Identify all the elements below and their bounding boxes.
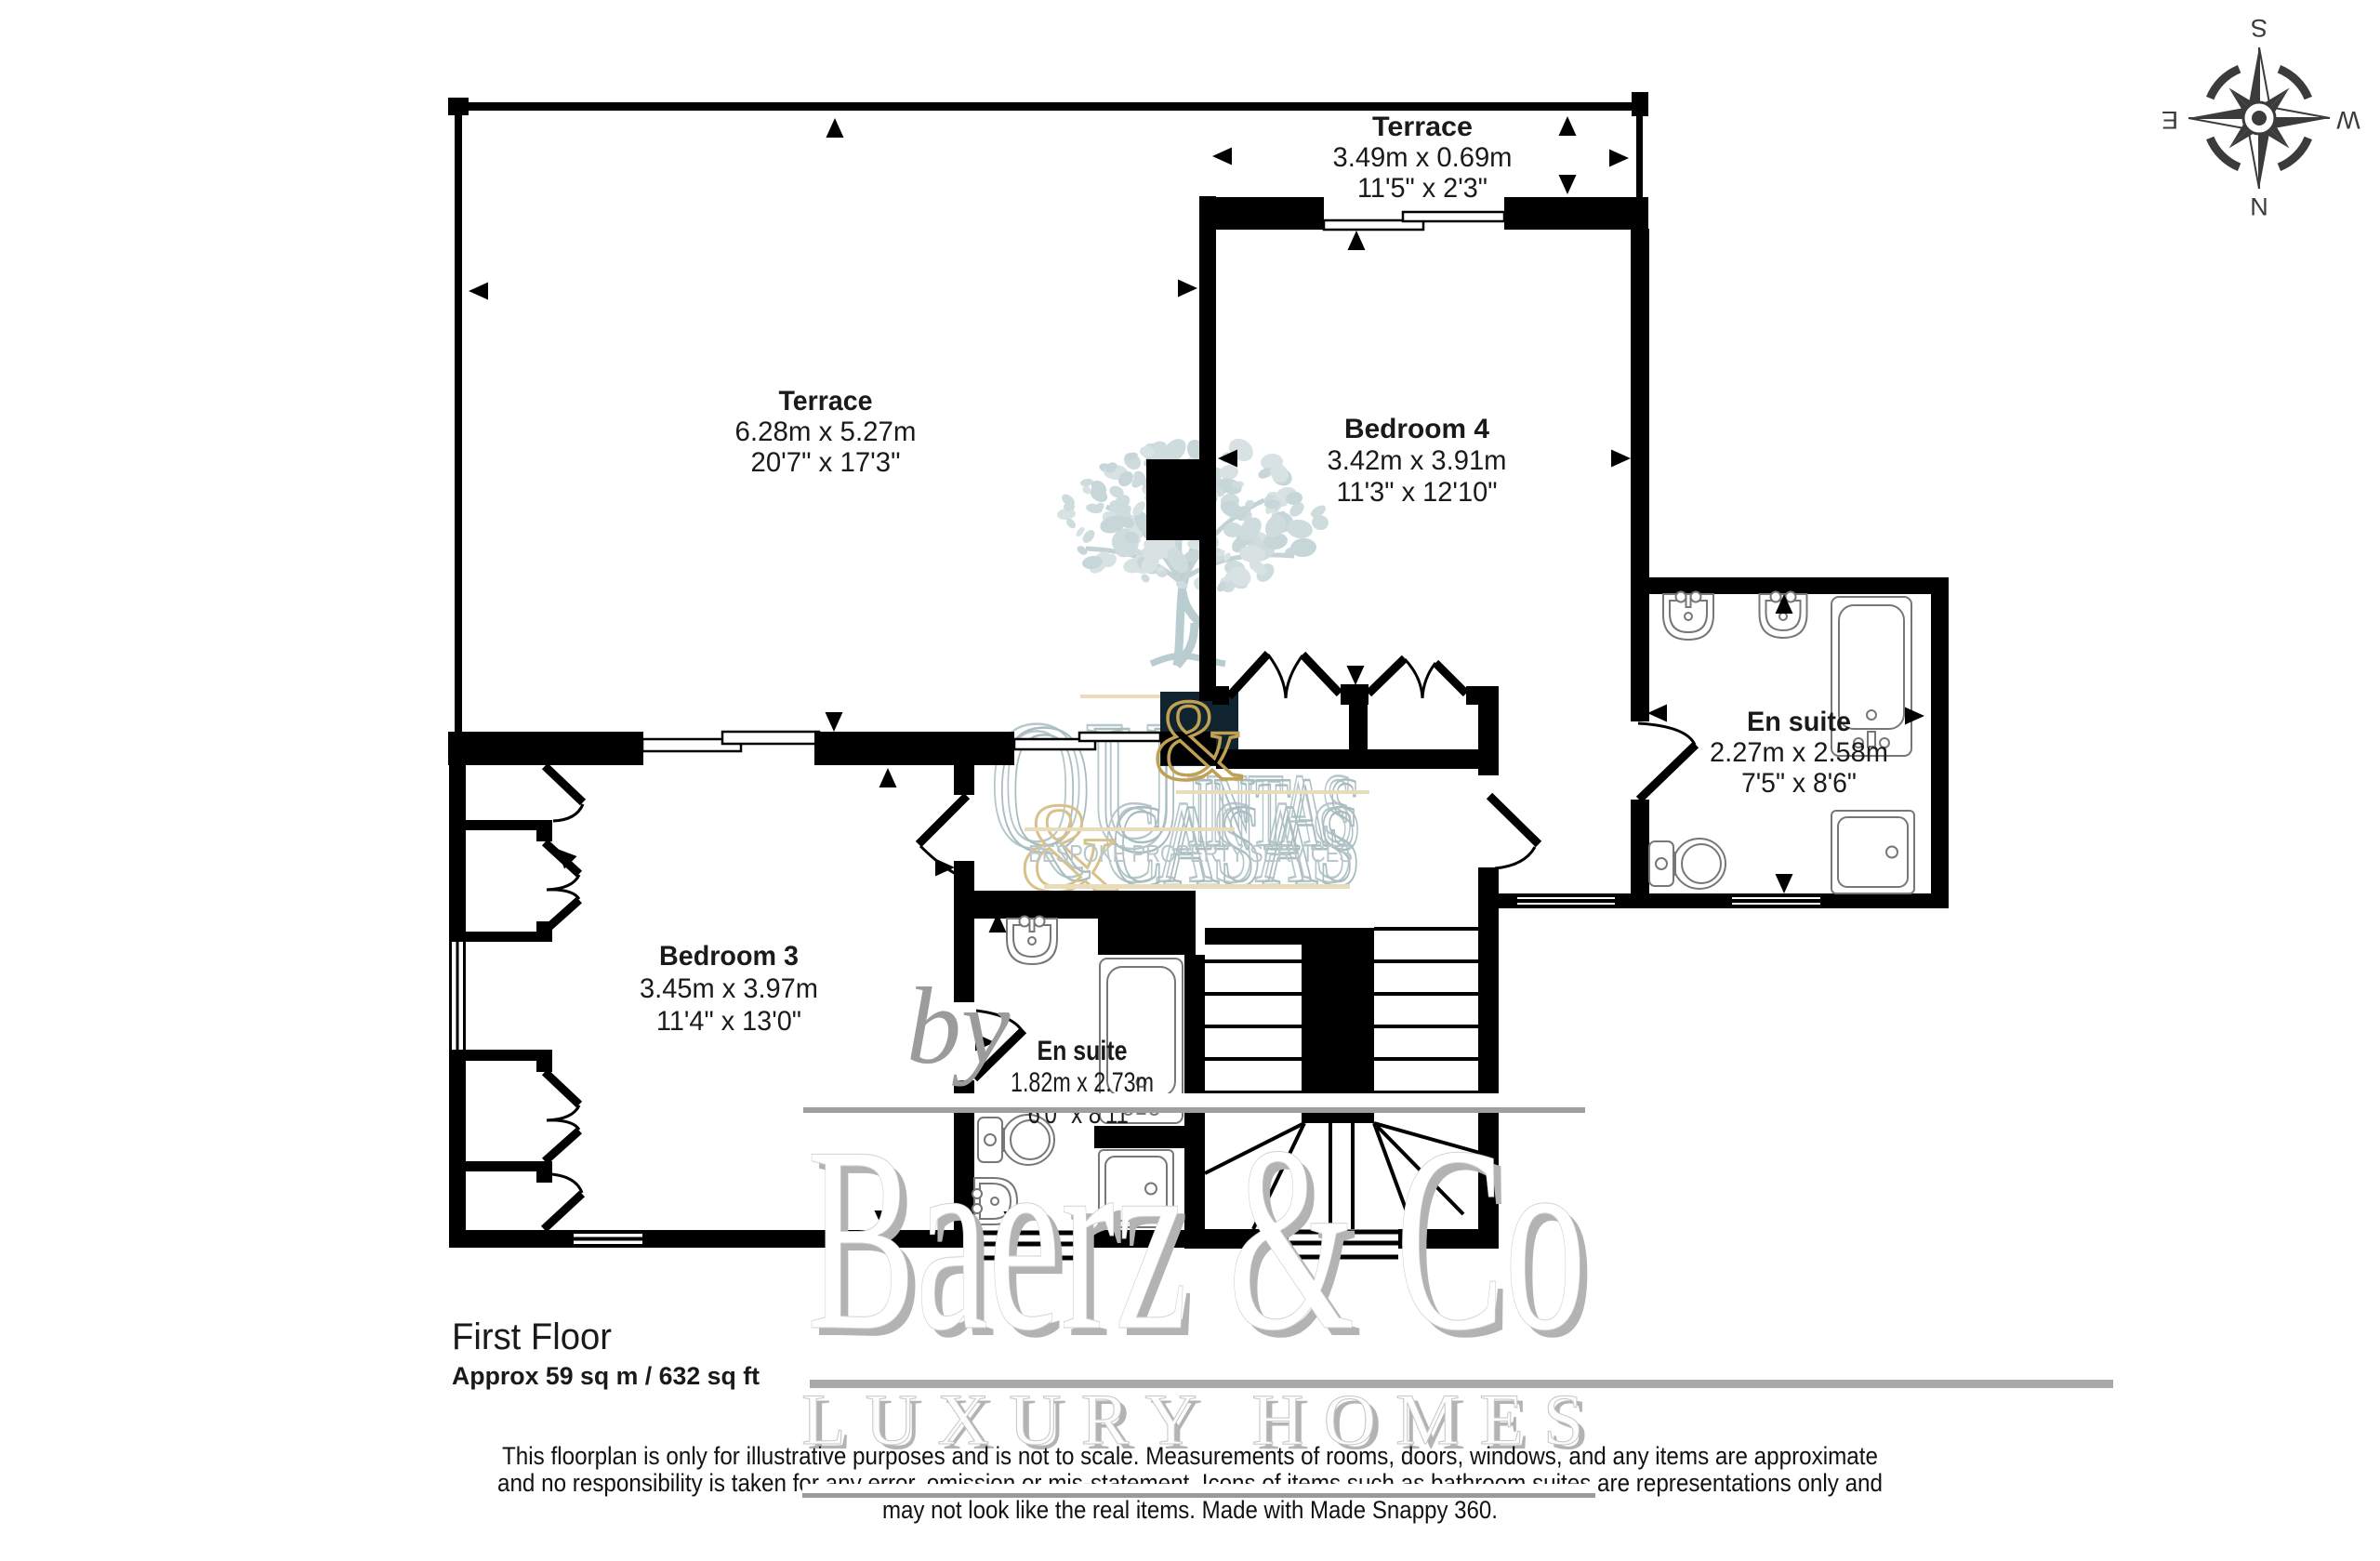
svg-text:6.28m x 5.27m: 6.28m x 5.27m <box>735 417 917 447</box>
svg-text:W: W <box>2336 106 2360 134</box>
svg-text:11'3" x 12'10": 11'3" x 12'10" <box>1337 477 1498 508</box>
svg-text:En suite: En suite <box>1747 707 1851 737</box>
svg-text:BESPOKE PROPERTY SERVICES: BESPOKE PROPERTY SERVICES <box>1028 840 1353 867</box>
svg-text:20'7" x 17'3": 20'7" x 17'3" <box>751 447 901 478</box>
svg-text:3.45m x 3.97m: 3.45m x 3.97m <box>640 973 818 1004</box>
svg-text:&: & <box>1153 677 1243 805</box>
svg-text:11'4" x 13'0": 11'4" x 13'0" <box>656 1006 801 1037</box>
svg-text:Bedroom 3: Bedroom 3 <box>659 941 799 972</box>
svg-text:En suite: En suite <box>1038 1036 1128 1066</box>
svg-text:Approx 59 sq m / 632 sq ft: Approx 59 sq m / 632 sq ft <box>452 1362 760 1390</box>
svg-text:N: N <box>2250 192 2268 220</box>
svg-text:3.49m x 0.69m: 3.49m x 0.69m <box>1333 142 1513 173</box>
svg-text:E: E <box>2162 106 2178 134</box>
svg-text:Baerz & Co: Baerz & Co <box>807 1091 1586 1385</box>
svg-text:First Floor: First Floor <box>452 1316 612 1357</box>
svg-text:3.42m x 3.91m: 3.42m x 3.91m <box>1328 445 1507 476</box>
svg-text:11'5" x 2'3": 11'5" x 2'3" <box>1357 173 1487 204</box>
svg-text:Terrace: Terrace <box>1372 112 1473 142</box>
svg-text:This floorplan is only for ill: This floorplan is only for illustrative … <box>502 1442 1878 1470</box>
svg-text:S: S <box>2251 14 2268 42</box>
svg-text:by: by <box>906 965 1011 1087</box>
svg-text:Terrace: Terrace <box>779 386 873 417</box>
svg-text:Bedroom 4: Bedroom 4 <box>1344 414 1489 444</box>
svg-text:7'5" x 8'6": 7'5" x 8'6" <box>1741 768 1857 799</box>
svg-text:2.27m x 2.58m: 2.27m x 2.58m <box>1710 737 1888 768</box>
svg-text:may not look like the real ite: may not look like the real items. Made w… <box>882 1496 1498 1524</box>
